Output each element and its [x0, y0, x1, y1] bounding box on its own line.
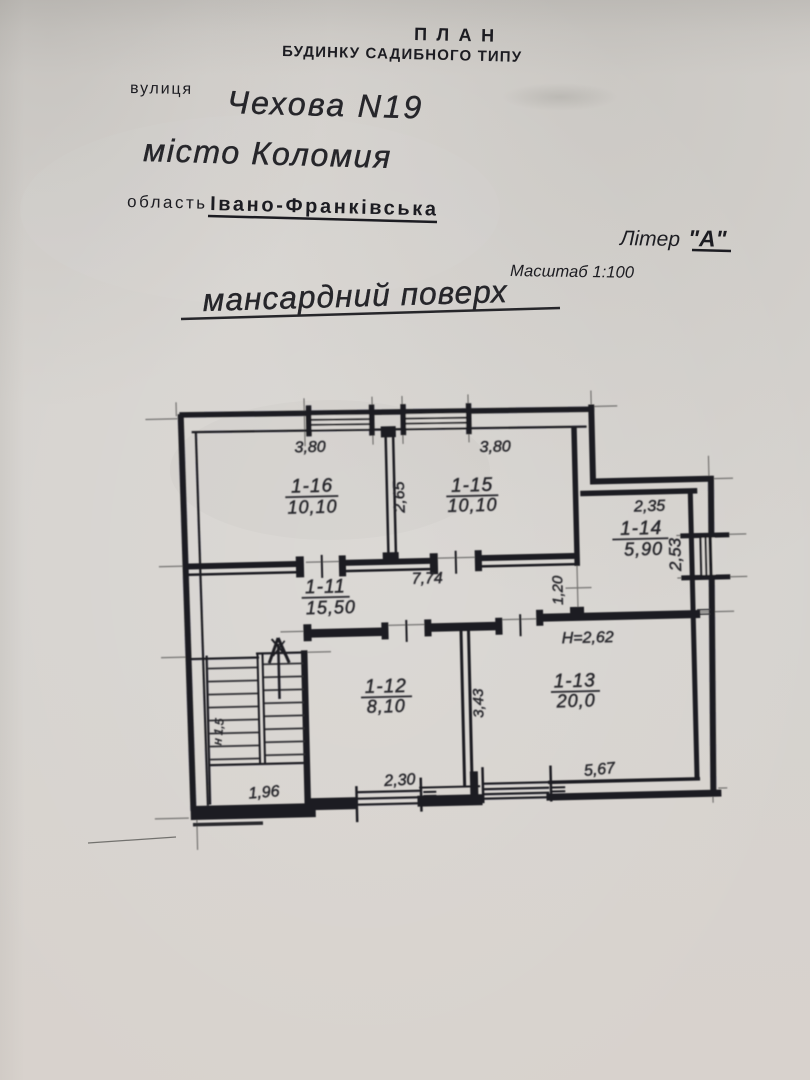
svg-text:5,67: 5,67 [583, 760, 617, 780]
svg-text:1-13: 1-13 [553, 670, 596, 692]
svg-text:8,10: 8,10 [367, 696, 407, 717]
svg-text:1-11: 1-11 [305, 576, 346, 598]
svg-text:1,20: 1,20 [549, 575, 567, 605]
svg-text:7,74: 7,74 [411, 570, 443, 588]
svg-text:3,43: 3,43 [470, 688, 488, 718]
svg-text:П Л А Н: П Л А Н [414, 24, 494, 46]
svg-text:15,50: 15,50 [306, 597, 357, 618]
svg-text:1-12: 1-12 [365, 676, 408, 698]
svg-text:2,65: 2,65 [391, 481, 409, 514]
svg-text:2,35: 2,35 [633, 498, 666, 516]
svg-text:20,0: 20,0 [555, 690, 596, 711]
svg-text:1,96: 1,96 [248, 783, 280, 802]
svg-text:Н=2,62: Н=2,62 [561, 629, 614, 647]
svg-text:н 1,5: н 1,5 [210, 717, 227, 745]
svg-text:3,80: 3,80 [294, 439, 326, 457]
svg-text:Літер: Літер [618, 227, 680, 251]
svg-text:Чехова N19: Чехова N19 [227, 84, 425, 125]
svg-text:10,10: 10,10 [447, 495, 498, 516]
svg-text:"А": "А" [688, 225, 728, 252]
svg-text:2,53: 2,53 [665, 537, 685, 572]
svg-text:місто Коломия: місто Коломия [143, 132, 393, 175]
svg-text:1-14: 1-14 [620, 518, 663, 540]
svg-text:3,80: 3,80 [479, 438, 511, 456]
svg-text:5,90: 5,90 [624, 539, 664, 560]
svg-text:1-15: 1-15 [451, 475, 494, 497]
svg-text:1-16: 1-16 [291, 476, 334, 498]
svg-text:2,30: 2,30 [383, 771, 416, 790]
svg-text:10,10: 10,10 [287, 497, 338, 518]
svg-text:Масштаб 1:100: Масштаб 1:100 [510, 262, 635, 282]
